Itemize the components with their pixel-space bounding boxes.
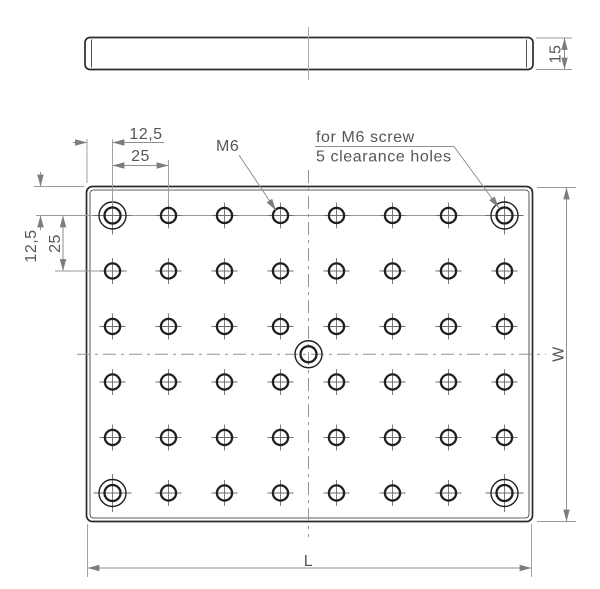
plan-view-plate-outline xyxy=(87,187,533,522)
dimension-text: 12,5 xyxy=(129,126,162,143)
dimension-text: 25 xyxy=(47,234,64,253)
side-view: 15 xyxy=(85,27,572,80)
dim-length: L xyxy=(88,524,532,577)
plan-view: 12,5 25 12,5 25 M6 for M6 screw xyxy=(23,126,576,577)
dim-thickness: 15 xyxy=(536,38,572,70)
width-dimension-text: W xyxy=(551,346,568,362)
length-dimension-text: L xyxy=(304,553,313,570)
thread-label: M6 xyxy=(216,138,239,155)
dimension-text: 12,5 xyxy=(23,229,40,262)
dim-hole-pitch-vertical: 25 xyxy=(47,216,64,272)
dimension-text: 25 xyxy=(131,148,150,165)
drawing-canvas: 15 12,5 25 12 xyxy=(0,0,600,589)
clearance-note-line2: 5 clearance holes xyxy=(316,149,452,166)
technical-drawing: 15 12,5 25 12 xyxy=(0,0,600,589)
thickness-dimension-text: 15 xyxy=(548,45,565,64)
dim-width: W xyxy=(537,188,576,522)
clearance-note-line1: for M6 screw xyxy=(316,129,415,146)
